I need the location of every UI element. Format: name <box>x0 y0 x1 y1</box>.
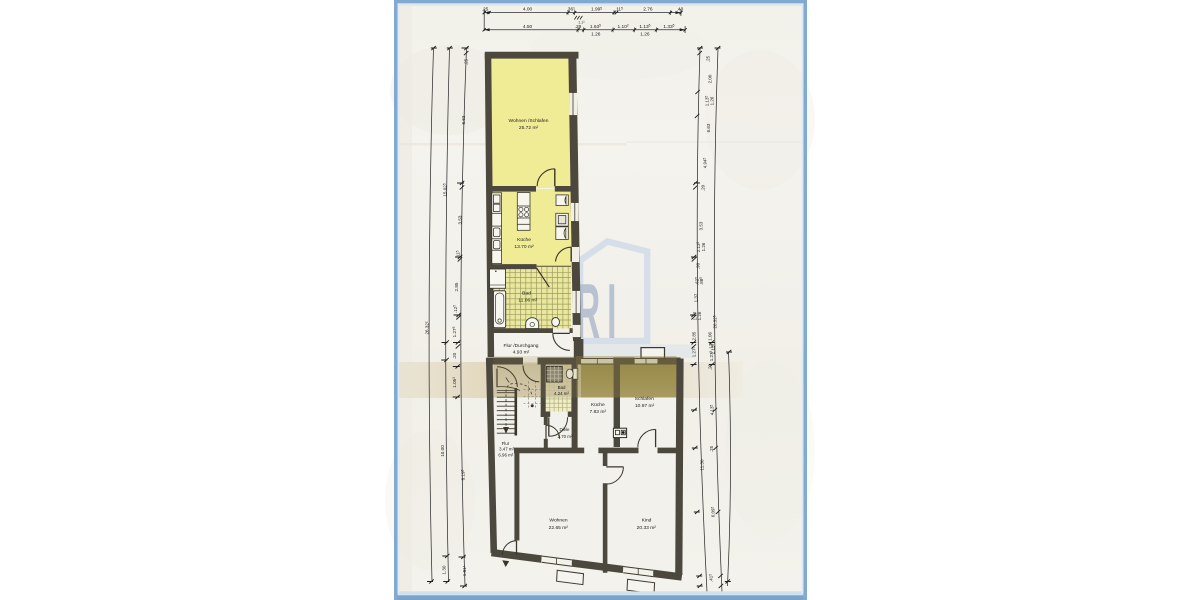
svg-text:20.33 m²: 20.33 m² <box>637 525 657 531</box>
svg-text:Küche: Küche <box>591 402 605 408</box>
svg-text:Kind: Kind <box>642 518 652 524</box>
svg-text:3.53: 3.53 <box>458 215 463 224</box>
svg-text:4.00: 4.00 <box>523 7 533 13</box>
svg-text:Bad: Bad <box>522 291 531 297</box>
svg-text:22.65 m²: 22.65 m² <box>549 525 569 531</box>
svg-text:15.025: 15.025 <box>442 183 447 197</box>
svg-text:6.63: 6.63 <box>461 115 466 124</box>
svg-text:2.85: 2.85 <box>454 282 459 291</box>
svg-text:.25: .25 <box>709 445 714 452</box>
svg-text:26.32²: 26.32² <box>425 321 430 334</box>
svg-text:11.06 m²: 11.06 m² <box>518 298 537 304</box>
svg-text:4.93 m²: 4.93 m² <box>513 350 530 356</box>
svg-text:3.53: 3.53 <box>699 221 704 230</box>
svg-text:1.26: 1.26 <box>701 242 706 251</box>
svg-text:.20: .20 <box>708 363 713 370</box>
svg-text:10.97 m²: 10.97 m² <box>635 403 655 409</box>
svg-text:1.37: 1.37 <box>694 293 699 302</box>
svg-text:.90: .90 <box>696 262 701 269</box>
svg-text:Flur /Durchgang: Flur /Durchgang <box>503 343 538 349</box>
svg-text:.25: .25 <box>706 55 711 62</box>
svg-text:Wohnen: Wohnen <box>549 518 567 524</box>
svg-text:25.72 m²: 25.72 m² <box>519 125 539 131</box>
svg-text:Küche: Küche <box>517 237 531 243</box>
svg-text:2.00: 2.00 <box>708 74 713 83</box>
svg-text:2.70 m²: 2.70 m² <box>558 434 573 439</box>
svg-text:.25: .25 <box>464 58 469 65</box>
svg-text:1.26: 1.26 <box>697 311 702 320</box>
svg-text:3.47 m²: 3.47 m² <box>499 447 514 452</box>
svg-text:Schlafen: Schlafen <box>635 396 654 402</box>
svg-text:13.70 m²: 13.70 m² <box>514 244 534 250</box>
svg-text:I: I <box>607 268 616 355</box>
svg-text:1.81¹: 1.81¹ <box>462 565 467 576</box>
svg-text:.25: .25 <box>482 7 489 13</box>
svg-text:1.05³: 1.05³ <box>452 377 457 388</box>
svg-text:11.30: 11.30 <box>700 459 705 470</box>
svg-text:.40: .40 <box>677 7 684 13</box>
svg-text:6.63: 6.63 <box>706 123 711 132</box>
svg-text:.20: .20 <box>701 184 706 191</box>
svg-text:.20: .20 <box>452 352 457 359</box>
svg-text:Diele: Diele <box>559 427 570 432</box>
svg-text:10.00: 10.00 <box>440 445 445 457</box>
svg-text:1.26: 1.26 <box>591 32 601 38</box>
svg-text:Wohnen /Schlafen: Wohnen /Schlafen <box>509 118 549 124</box>
svg-text:2.76: 2.76 <box>643 7 653 13</box>
svg-text:1.26: 1.26 <box>710 96 715 105</box>
svg-text:7.83 m²: 7.83 m² <box>590 409 607 415</box>
svg-text:1.30: 1.30 <box>442 565 447 574</box>
svg-text:1.26: 1.26 <box>640 32 650 38</box>
svg-text:.29: .29 <box>575 24 582 30</box>
svg-text:Flur: Flur <box>502 441 510 446</box>
svg-text:4.24 m²: 4.24 m² <box>554 391 569 396</box>
svg-text:Bad: Bad <box>558 385 566 390</box>
svg-text:6.96 m²: 6.96 m² <box>498 453 513 458</box>
svg-text:4.50: 4.50 <box>523 24 533 30</box>
svg-text:2.85: 2.85 <box>692 331 697 340</box>
